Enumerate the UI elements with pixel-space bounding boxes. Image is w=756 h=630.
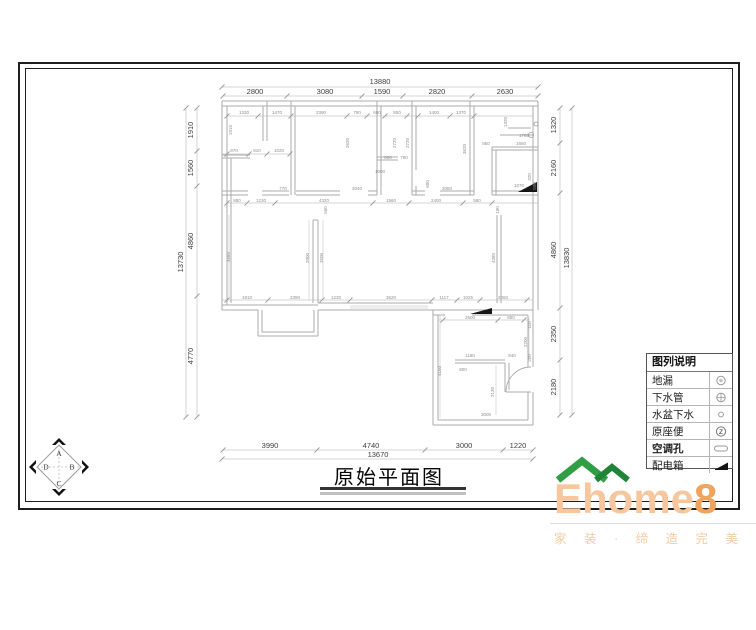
compass-arrow-bottom	[52, 489, 66, 496]
detail-label: 2400	[431, 198, 442, 203]
dim-label: 2160	[549, 160, 558, 177]
detail-label: 840	[508, 353, 516, 358]
detail-label: 3040	[352, 186, 363, 191]
detail-label: 320	[527, 173, 532, 181]
detail-label: 1025	[463, 295, 474, 300]
detail-label: 1780	[519, 133, 530, 138]
dim-label: 1220	[510, 441, 527, 450]
door-arc	[506, 367, 531, 392]
legend-icon-cell	[709, 389, 732, 405]
detail-label: 810	[253, 148, 261, 153]
dim-label: 2800	[247, 87, 264, 96]
dim-label: 4860	[186, 233, 195, 250]
detail-label: 4320	[319, 198, 330, 203]
detail-label: 2620	[345, 137, 350, 148]
detail-label: 4680	[226, 251, 231, 262]
detail-label: 800	[384, 155, 392, 160]
detail-label: 1910	[228, 124, 233, 135]
detail-label: 2900	[305, 252, 310, 263]
detail-label: 3620	[386, 295, 397, 300]
detail-label: 1180	[465, 353, 475, 358]
detail-label: 2720	[405, 137, 410, 148]
detail-label: 1000	[375, 169, 386, 174]
detail-label: 1230	[331, 295, 342, 300]
detail-label: 600	[425, 180, 430, 188]
detail-label: 1560	[386, 198, 397, 203]
detail-label: 1370	[456, 110, 467, 115]
logo-text: Ehome8	[554, 478, 717, 520]
dim-label: 1320	[549, 117, 558, 134]
legend-row: 原座便 Z	[647, 422, 732, 439]
power-box-symbol	[470, 308, 492, 314]
legend-icon-cell	[709, 372, 732, 388]
dim-label: 4770	[186, 348, 195, 365]
legend-label: 水盆下水	[647, 407, 709, 422]
detail-label: 880	[233, 198, 241, 203]
logo-text-digit: 8	[694, 475, 717, 522]
dim-total-label: 13830	[562, 248, 571, 269]
detail-label: 3620	[462, 143, 467, 154]
compass-letter-d: D	[43, 463, 49, 472]
dim-total-label: 13670	[368, 450, 389, 459]
detail-label: 2500	[465, 315, 476, 320]
dim-total-label: 13880	[370, 77, 391, 86]
detail-label: 500	[532, 182, 537, 190]
dim-label: 4860	[549, 242, 558, 259]
svg-text:Z: Z	[719, 429, 723, 436]
compass-arrow-left	[29, 460, 36, 474]
detail-label: 2060	[498, 295, 509, 300]
legend-header: 图列说明	[647, 354, 732, 372]
compass-arrow-top	[52, 438, 66, 445]
detail-label: 850	[507, 315, 515, 320]
detail-label: 3080	[442, 186, 453, 191]
detail-label: 790	[353, 110, 361, 115]
logo-tagline: 家 装 · 缔 造 完 美 生 活	[554, 528, 756, 547]
compass-arrow-right	[82, 460, 89, 474]
dim-label: 3080	[317, 87, 334, 96]
detail-label: 4150	[437, 365, 442, 376]
title-underline-dark	[320, 487, 466, 490]
detail-label: 850	[393, 110, 401, 115]
legend-row: 地漏	[647, 372, 732, 388]
detail-label: 790	[400, 155, 408, 160]
detail-label: 2390	[290, 295, 301, 300]
detail-label: 770	[279, 186, 287, 191]
detail-label: 100	[495, 206, 500, 214]
detail-label: 1810	[242, 295, 253, 300]
detail-label: 1230	[256, 198, 267, 203]
legend-label: 原座便	[647, 424, 709, 439]
legend-row: 下水管	[647, 388, 732, 405]
detail-label: 970	[230, 148, 238, 153]
detail-label: 1020	[274, 148, 285, 153]
dim-label: 1560	[186, 160, 195, 177]
legend-label: 下水管	[647, 390, 709, 405]
detail-label: 1070	[514, 183, 525, 188]
detail-label: 3500	[319, 252, 324, 263]
drawing-title: 原始平面图	[322, 461, 456, 490]
detail-label: 1117	[439, 295, 449, 300]
compass-letter-b: B	[69, 463, 74, 472]
drain-circle	[534, 122, 538, 126]
toilet-icon: Z	[711, 425, 731, 438]
detail-label: 1470	[272, 110, 283, 115]
detail-label: 110	[527, 321, 532, 329]
compass-letter-a: A	[56, 449, 62, 458]
legend-row: 水盆下水	[647, 405, 732, 422]
detail-label: 2200	[523, 336, 528, 347]
detail-label: 2720	[392, 137, 397, 148]
dim-label: 2180	[549, 379, 558, 396]
dim-label: 3990	[262, 441, 279, 450]
detail-label: 1650	[516, 141, 527, 146]
drain-pipe-icon	[711, 391, 731, 404]
detail-label: 600	[373, 110, 381, 115]
compass-letter-c: C	[56, 479, 61, 488]
detail-label: 3000	[481, 412, 492, 417]
floor-drain-icon	[711, 374, 731, 387]
dim-label: 2630	[497, 87, 514, 96]
compass-rose: A B C D	[27, 436, 91, 500]
title-underline-light	[320, 492, 466, 495]
basin-drain-icon	[711, 408, 731, 421]
detail-label: 1320	[503, 116, 508, 127]
dim-total-label: 13730	[176, 252, 185, 273]
dim-label: 3000	[456, 441, 473, 450]
detail-label: 2130	[490, 386, 495, 397]
detail-label: 4380	[491, 252, 496, 263]
dim-label: 4740	[363, 441, 380, 450]
legend-icon-cell	[709, 406, 732, 422]
legend-label: 地漏	[647, 373, 709, 388]
dim-label: 1910	[186, 122, 195, 139]
detail-label: 220	[527, 354, 532, 362]
dim-label: 2820	[429, 87, 446, 96]
logo-divider-line	[550, 523, 756, 524]
detail-label: 1330	[239, 110, 250, 115]
logo-text-main: Ehome	[554, 475, 694, 522]
detail-label: 800	[459, 367, 467, 372]
detail-label: 2390	[316, 110, 327, 115]
dim-label: 1590	[374, 87, 391, 96]
detail-label: 1400	[429, 110, 440, 115]
legend-icon-cell: Z	[709, 423, 732, 439]
drawing-sheet: 2800308015902820263013880399047403000122…	[0, 0, 756, 630]
detail-label: 850	[482, 141, 490, 146]
detail-label: 560	[323, 206, 328, 214]
dim-label: 2350	[549, 326, 558, 343]
ehome8-logo: Ehome8 家 装 · 缔 造 完 美 生 活	[550, 452, 756, 552]
detail-label: 580	[473, 198, 481, 203]
